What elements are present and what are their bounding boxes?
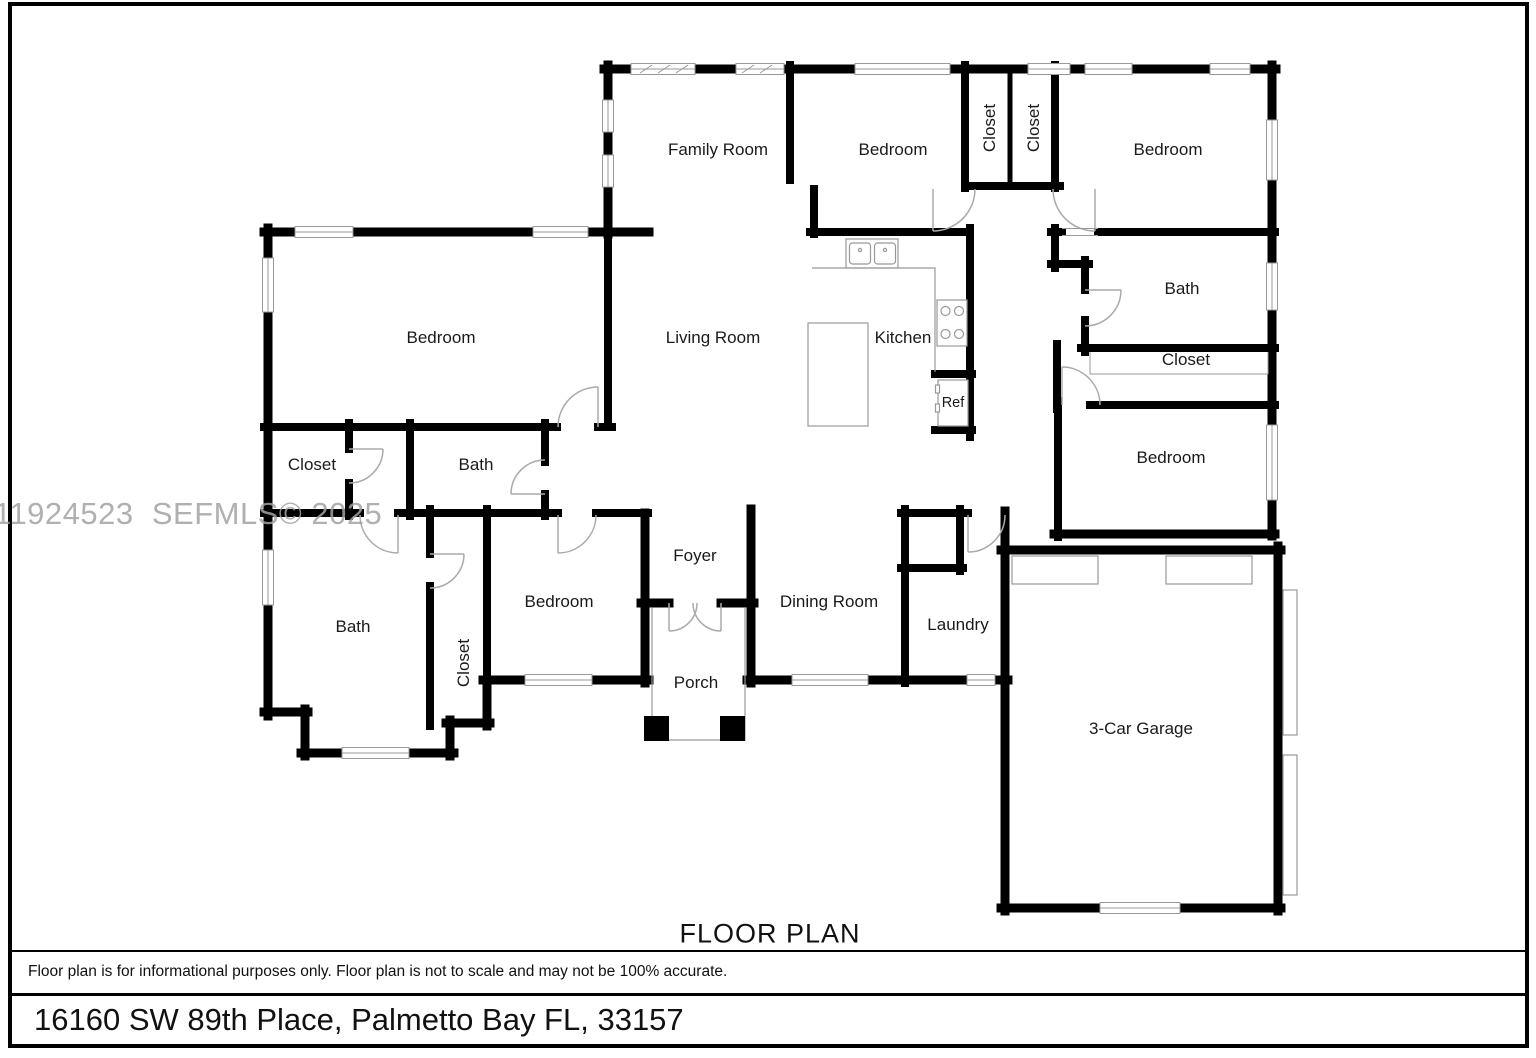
exterior-walls bbox=[264, 65, 1281, 911]
property-address: 16160 SW 89th Place, Palmetto Bay FL, 33… bbox=[34, 1002, 684, 1038]
room-label-closet-middle-left: Closet bbox=[288, 455, 336, 475]
garage-storage bbox=[1012, 556, 1098, 584]
room-label-bath-right: Bath bbox=[1165, 279, 1200, 299]
room-label-kitchen: Kitchen bbox=[875, 328, 932, 348]
room-label-laundry: Laundry bbox=[927, 615, 988, 635]
porch-post bbox=[720, 716, 745, 741]
windows bbox=[263, 64, 1278, 914]
room-label-closet-top-right: Closet bbox=[1024, 104, 1044, 152]
plan-title: FLOOR PLAN bbox=[679, 919, 860, 950]
interior-walls bbox=[264, 65, 1275, 726]
garage-storage bbox=[1166, 556, 1252, 584]
room-label-dining-room: Dining Room bbox=[780, 592, 878, 612]
porch-post bbox=[644, 716, 669, 741]
floor-plan-page: Family Room Bedroom Closet Closet Bedroo… bbox=[0, 0, 1536, 1058]
room-label-family-room: Family Room bbox=[668, 140, 768, 160]
room-label-bedroom-top-middle: Bedroom bbox=[859, 140, 928, 160]
garage-door bbox=[1283, 590, 1297, 735]
garage-door bbox=[1283, 755, 1297, 895]
room-label-bath-middle: Bath bbox=[459, 455, 494, 475]
divider-line bbox=[8, 950, 1529, 952]
disclaimer-text: Floor plan is for informational purposes… bbox=[28, 963, 727, 981]
kitchen-island bbox=[808, 323, 868, 426]
room-label-ref: Ref bbox=[942, 395, 965, 411]
room-label-living-room: Living Room bbox=[666, 328, 761, 348]
room-label-bath-lower-left: Bath bbox=[336, 617, 371, 637]
mls-watermark: 11924523 SEFMLS© 2025 bbox=[0, 496, 382, 532]
room-label-garage: 3-Car Garage bbox=[1089, 719, 1193, 739]
room-label-foyer: Foyer bbox=[673, 546, 716, 566]
room-label-bedroom-left: Bedroom bbox=[407, 328, 476, 348]
room-label-closet-lower: Closet bbox=[454, 639, 474, 687]
room-label-bedroom-right-lower: Bedroom bbox=[1137, 448, 1206, 468]
divider-line bbox=[8, 993, 1529, 996]
room-label-bedroom-top-right: Bedroom bbox=[1134, 140, 1203, 160]
room-label-closet-right: Closet bbox=[1162, 350, 1210, 370]
stove bbox=[937, 300, 967, 346]
kitchen-sink bbox=[846, 239, 898, 268]
cased-opening-lines bbox=[1062, 229, 1098, 236]
room-label-porch: Porch bbox=[674, 673, 718, 693]
room-label-closet-top-left: Closet bbox=[980, 104, 1000, 152]
room-label-bedroom-lower: Bedroom bbox=[525, 592, 594, 612]
